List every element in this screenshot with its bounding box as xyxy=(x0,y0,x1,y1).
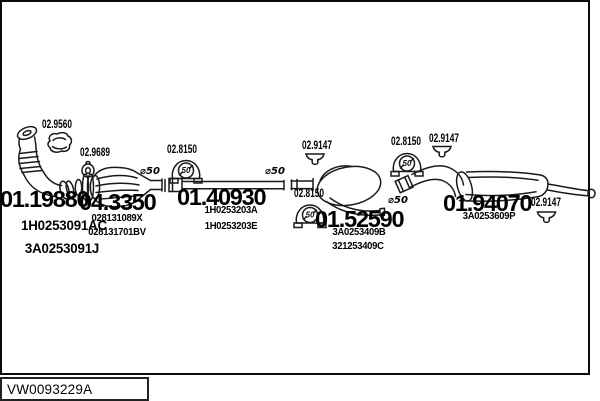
oem-number: 3A0253609P xyxy=(435,211,543,222)
part-number-main: 01.19880 xyxy=(0,188,88,212)
rubber-mount-icon: 50 xyxy=(170,161,202,184)
hanger-part-code: 02.8150 xyxy=(167,145,197,157)
hanger-part-code: 02.8150 xyxy=(391,137,421,149)
hanger-part-code: 02.8150 xyxy=(294,189,324,201)
gasket-ring-icon xyxy=(82,162,94,178)
diameter-marking: ⌀50 xyxy=(388,196,408,206)
hanger-part-code: 02.9147 xyxy=(531,198,561,210)
mount-size-badge: 50 xyxy=(182,166,191,175)
mount-size-badge: 50 xyxy=(403,159,412,168)
exhaust-parts-diagram: 50 50 50 02.9560 02.9689 02.8150 02 xyxy=(0,0,600,400)
clamp-icon xyxy=(48,133,71,153)
oem-number: 321253409C xyxy=(304,241,412,252)
diameter-marking: ⌀50 xyxy=(265,167,285,177)
small-hanger-icon xyxy=(306,154,324,164)
oem-number: 1H0253203E xyxy=(177,221,285,232)
mount-size-badge: 50 xyxy=(306,211,315,220)
catalog-code-box: VW0093229A xyxy=(0,377,149,401)
oem-number: 1H0253203A xyxy=(177,205,285,216)
catalog-code: VW0093229A xyxy=(7,382,92,397)
oem-number: 3A0253409B xyxy=(305,227,413,238)
hanger-part-code: 02.9147 xyxy=(302,141,332,153)
oem-number: 3A0253091J xyxy=(5,241,119,255)
hanger-part-code: 02.9147 xyxy=(429,134,459,146)
rubber-mount-icon: 50 xyxy=(391,154,423,177)
diameter-marking: ⌀50 xyxy=(140,167,160,177)
oem-number: 028131089X xyxy=(63,213,171,224)
hanger-part-code: 02.9689 xyxy=(80,148,110,160)
small-hanger-icon xyxy=(433,147,451,157)
hanger-part-code: 02.9560 xyxy=(42,120,72,132)
part-number-main: 04.3350 xyxy=(79,191,156,215)
oem-number: 028131701BV xyxy=(63,227,171,238)
